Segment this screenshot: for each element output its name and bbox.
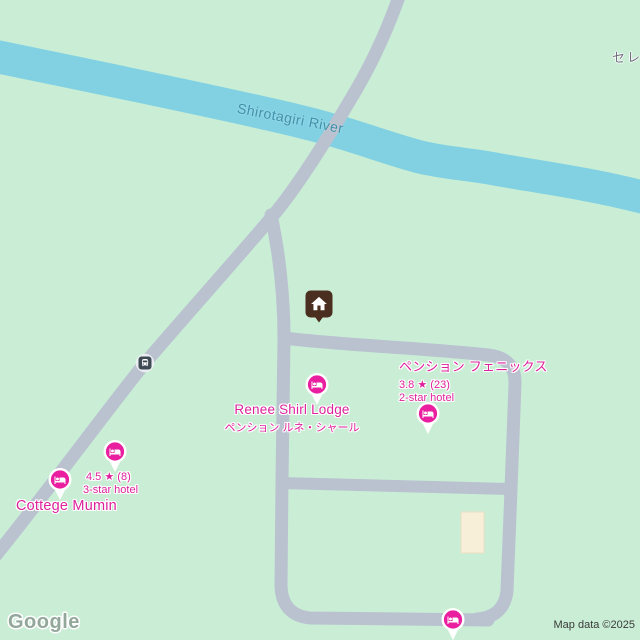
place-rating: 3.8 ★ (23) [399,378,548,391]
place-category: 3-star hotel [83,484,138,496]
place-label-mumin[interactable]: 4.5 ★ (8) 3-star hotel Cottege Mumin [16,470,138,514]
locality-label: セレ [612,47,640,66]
star-icon: ★ [417,379,427,391]
map-viewport[interactable]: Shirotagiri River セレ [0,0,640,640]
hotel-pin-mumin-upper[interactable] [100,439,130,473]
rating-value: 4.5 [86,471,101,483]
star-icon: ★ [104,471,114,483]
place-name: Renee Shirl Lodge [202,402,382,417]
google-logo[interactable]: Google [8,611,80,634]
place-rating: 4.5 ★ (8) [86,470,138,483]
building-footprint [461,512,484,553]
map-attribution: Map data ©2025 [554,619,636,631]
bus-icon[interactable] [135,353,155,373]
review-count: (23) [430,379,450,391]
place-label-renee[interactable]: Renee Shirl Lodge ペンション ルネ・シャール [202,402,382,435]
hotel-pin-phoenix[interactable] [413,401,443,435]
road-block-middle [281,483,511,489]
review-count: (8) [117,471,130,483]
hotel-pin-bottom[interactable] [438,607,468,640]
home-icon[interactable] [303,289,335,323]
hotel-pin-renee[interactable] [302,372,332,406]
place-label-phoenix[interactable]: ペンション フェニックス 3.8 ★ (23) 2-star hotel [399,356,548,404]
place-name: Cottege Mumin [16,498,138,514]
place-category: 2-star hotel [399,392,548,404]
place-name-ja: ペンション ルネ・シャール [202,419,382,435]
place-name: ペンション フェニックス [399,356,548,375]
rating-value: 3.8 [399,379,414,391]
